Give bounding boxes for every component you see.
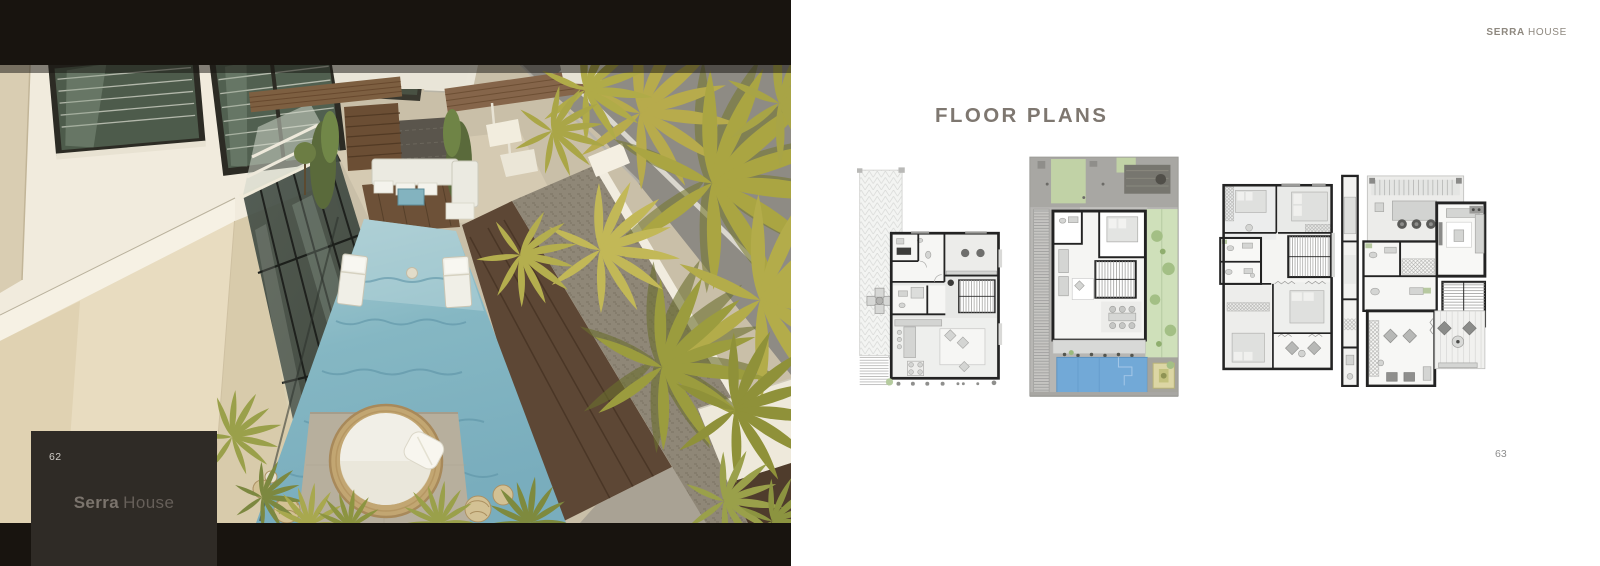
sun-lounger-left — [337, 254, 368, 307]
left-page-number: 62 — [49, 451, 61, 463]
left-page: 62 SerraHouse — [0, 0, 791, 566]
floor-plan-3 — [1210, 173, 1335, 382]
floor-plan-4 — [1340, 174, 1491, 387]
side-table — [407, 268, 418, 279]
project-title: SerraHouse — [31, 493, 217, 513]
right-page: SERRAHOUSE FLOOR PLANS — [791, 0, 1600, 566]
project-label-box: 62 SerraHouse — [31, 431, 217, 566]
brochure-spread: 62 SerraHouse SERRAHOUSE FLOOR PLANS — [0, 0, 1600, 566]
floor-plan-2 — [1026, 154, 1182, 400]
project-title-secondary: House — [123, 493, 174, 512]
brand-secondary: HOUSE — [1528, 27, 1567, 38]
page-title: FLOOR PLANS — [935, 104, 1108, 128]
brand-primary: SERRA — [1486, 27, 1525, 38]
upper-window-1 — [48, 65, 206, 160]
floor-plan-1 — [857, 160, 1003, 392]
right-page-number: 63 — [1495, 448, 1507, 460]
brand-header: SERRAHOUSE — [1486, 27, 1567, 38]
sun-lounger-right — [442, 256, 471, 308]
project-title-primary: Serra — [74, 493, 119, 512]
